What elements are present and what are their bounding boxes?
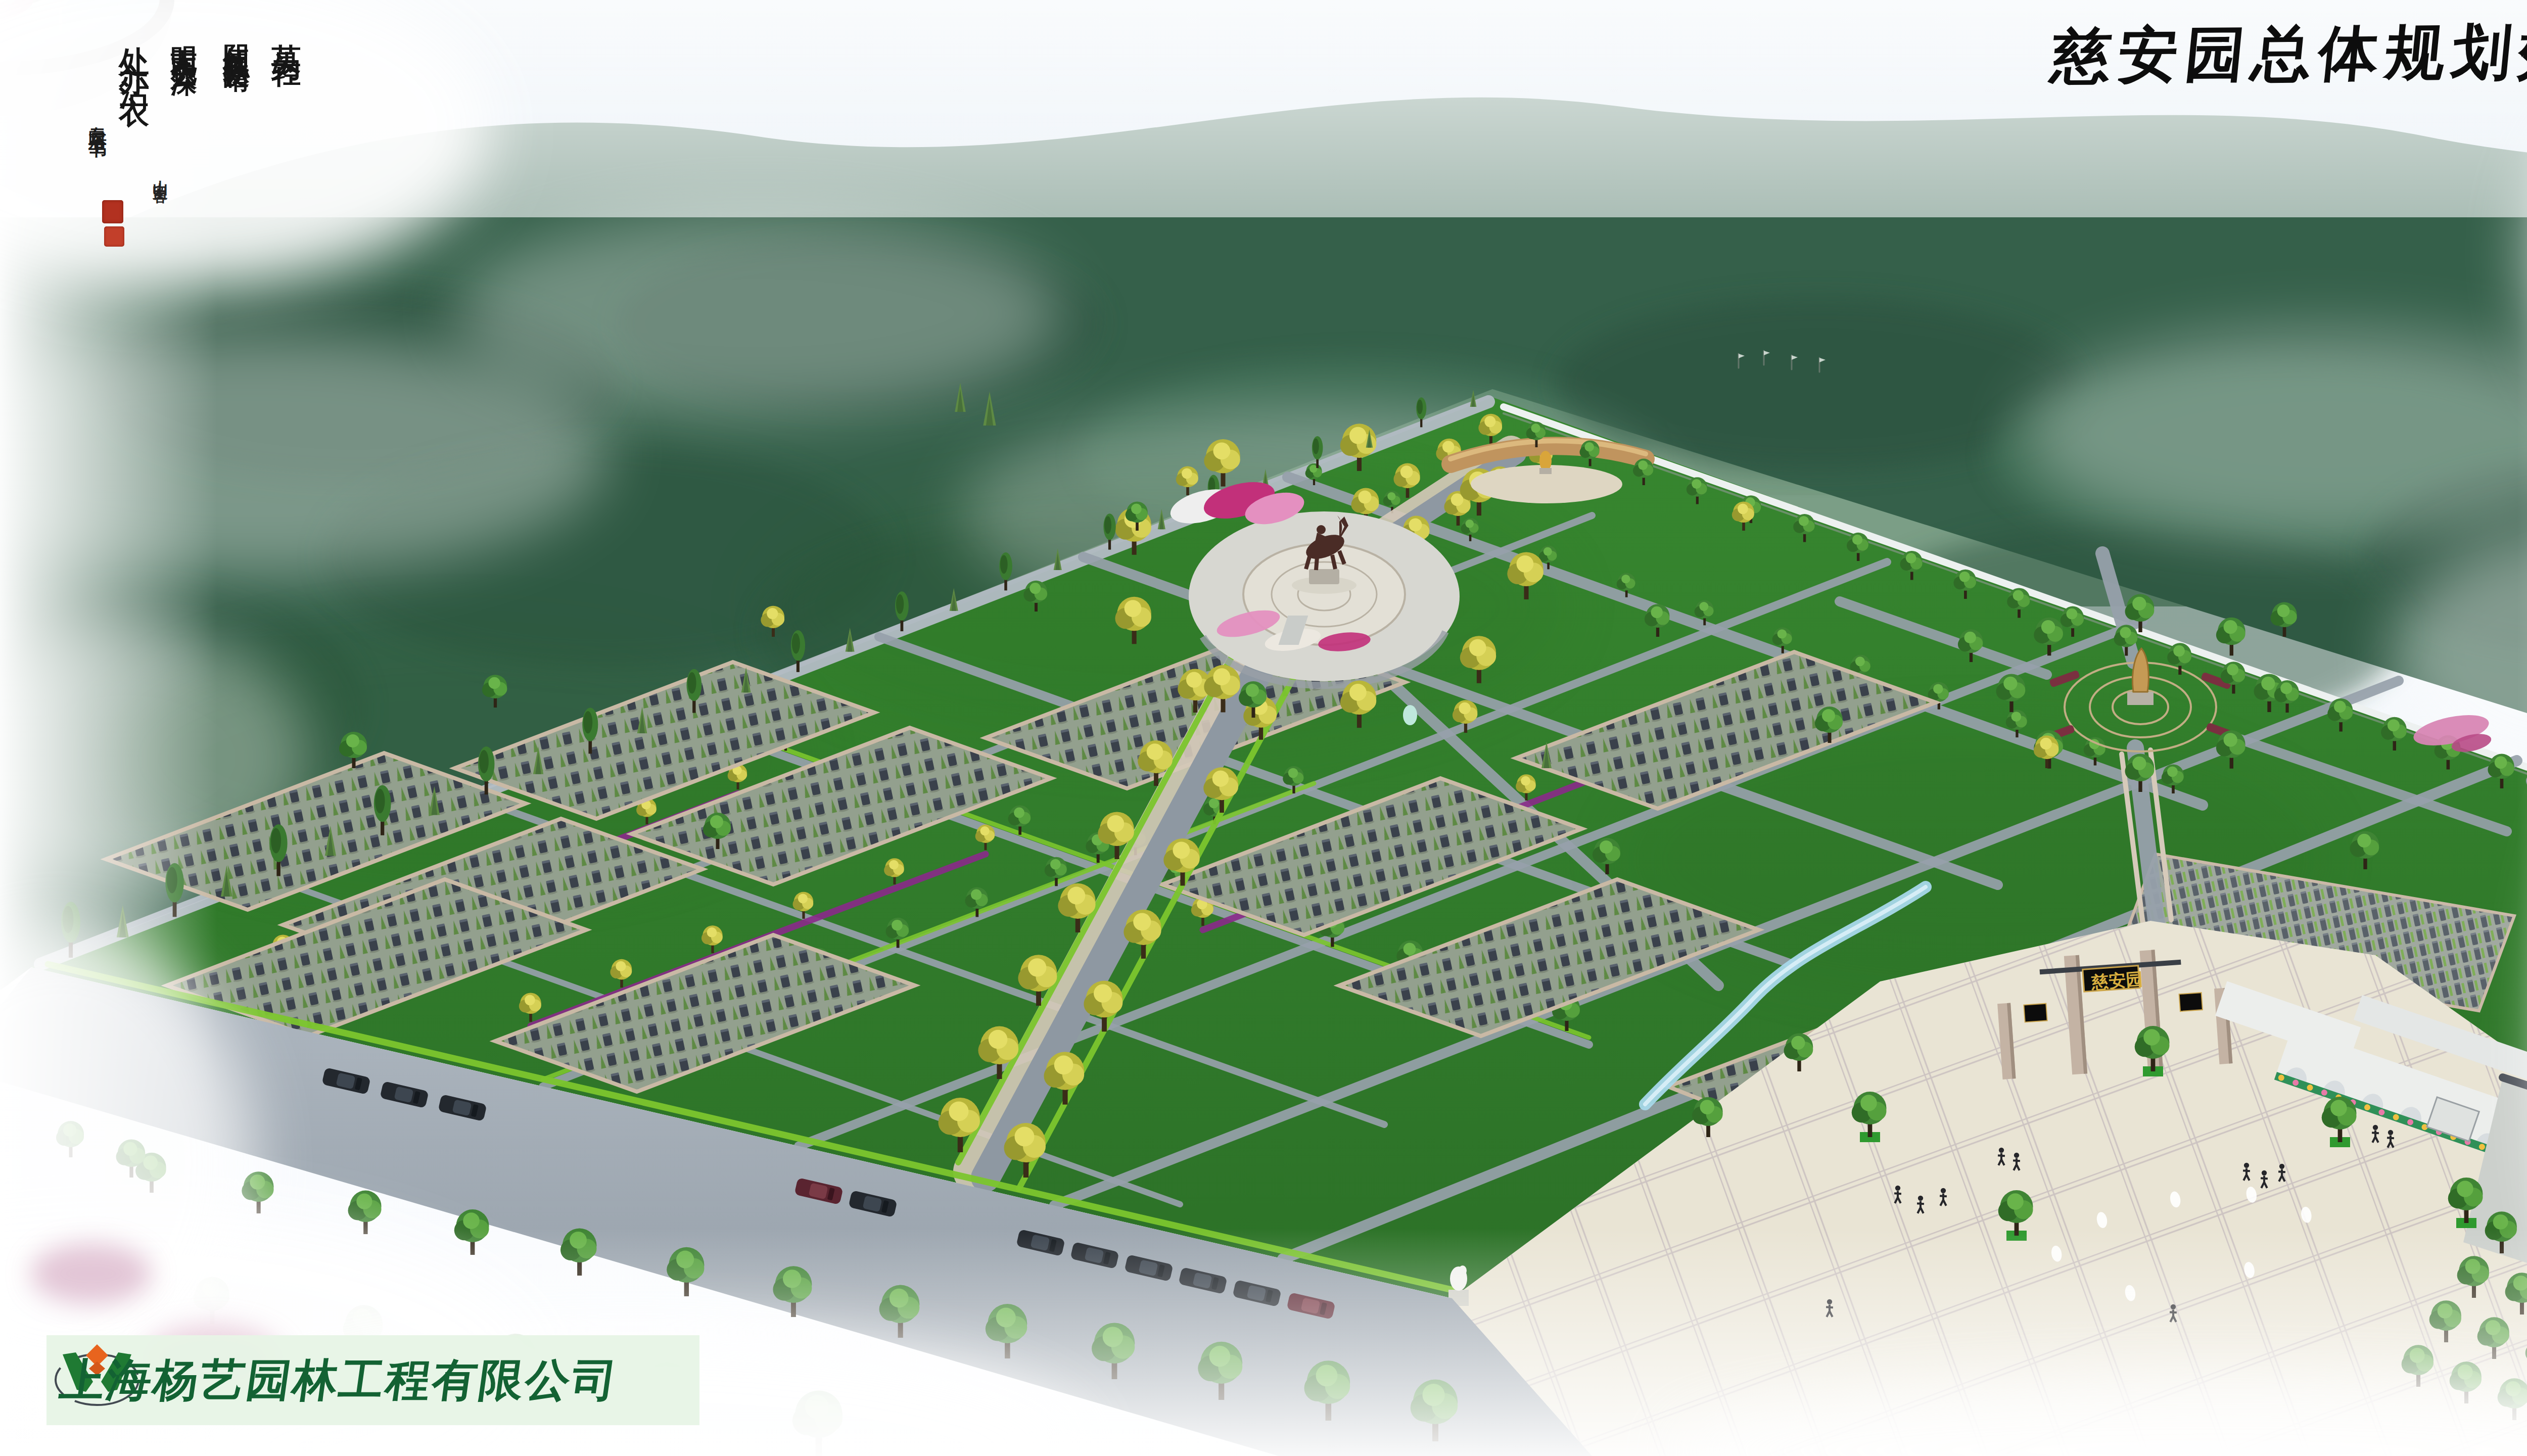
- company-banner: 上海杨艺园林工程有限公司: [46, 1335, 699, 1425]
- poem-column-1: 莫为轻: [272, 20, 301, 41]
- site-plan-rendering: 慈安园: [0, 0, 2527, 1456]
- red-seal-icon: [102, 200, 123, 223]
- red-seal-icon: [104, 226, 124, 247]
- poem-title-column: 山中留客: [153, 168, 168, 178]
- rendering-canvas: 慈安园 慈安园总体规划效果图 莫为轻 阴便拟归纵使晴 明无雨色入云深 处亦沾衣 …: [0, 0, 2527, 1456]
- poem-column-4: 处亦沾衣: [119, 22, 150, 87]
- main-title: 慈安园总体规划效果图: [2038, 10, 2527, 97]
- central-sculpture-plaza: [1189, 511, 1460, 685]
- company-name: 上海杨艺园林工程有限公司: [57, 1350, 623, 1411]
- poem-column-3: 明无雨色入云深: [171, 25, 197, 54]
- calligrapher-signature: 白云居士书: [89, 112, 107, 127]
- poem-column-2: 阴便拟归纵使晴: [223, 23, 250, 48]
- calligraphy-poem: 莫为轻 阴便拟归纵使晴 明无雨色入云深 处亦沾衣 山中留客 白云居士书: [0, 0, 354, 283]
- gate-plaque-text: 慈安园: [2090, 969, 2144, 993]
